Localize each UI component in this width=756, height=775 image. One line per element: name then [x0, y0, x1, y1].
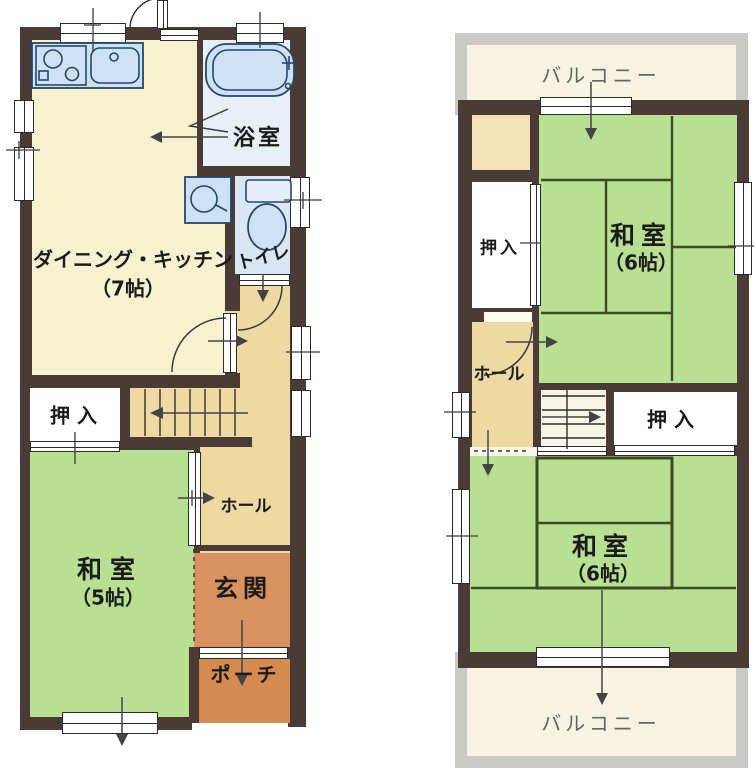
window: [62, 712, 158, 734]
label-hall-2f: ホール: [474, 360, 525, 385]
sliding-door: [188, 452, 201, 546]
label-closet-2f-top: 押入: [480, 234, 520, 259]
label-balcony-bottom: バルコニー: [541, 708, 661, 737]
label-washitsu-1f-size: （5帖）: [71, 582, 145, 611]
label-closet-1f: 押入: [50, 400, 104, 429]
window: [14, 100, 34, 133]
open-door-leaf: [223, 313, 237, 373]
open-door-leaf: [157, 0, 168, 29]
window: [452, 392, 470, 438]
room-hall-2f: [472, 322, 533, 447]
sliding-door: [614, 445, 735, 456]
window: [734, 182, 752, 275]
window: [60, 23, 126, 43]
label-porch: ポーチ: [211, 659, 280, 688]
room-stairs-1f: [130, 388, 250, 437]
label-bathroom: 浴室: [233, 120, 283, 152]
porch-open-edge: [192, 723, 288, 733]
wall-porch-left: [189, 647, 199, 723]
window: [536, 647, 670, 667]
window: [452, 489, 470, 584]
label-dining-kitchen: ダイニング・キッチン: [33, 244, 233, 273]
room-dining-kitchen: [32, 40, 197, 178]
window: [14, 147, 34, 201]
doorway-hall-2f: [484, 312, 532, 322]
floor-plan-canvas: ダイニング・キッチン （7帖） 浴室 トイレ 押入 和室 （5帖） ホール 玄関…: [0, 0, 756, 775]
sliding-door: [239, 274, 290, 286]
hall-2f-dash-strip: [470, 447, 537, 456]
room-hall-2f-nook: [472, 115, 530, 170]
door-threshold: [160, 29, 199, 41]
window: [540, 97, 632, 115]
window: [291, 326, 311, 380]
window: [291, 390, 311, 437]
wall-end-patch: [288, 727, 308, 733]
label-closet-2f-bottom: 押入: [647, 404, 701, 433]
sliding-door: [537, 446, 607, 456]
label-hall-1f: ホール: [221, 492, 272, 517]
label-washitsu-2f-top-size: （6帖）: [604, 247, 678, 276]
label-dining-kitchen-size: （7帖）: [91, 273, 165, 302]
window: [236, 23, 284, 43]
room-stairs-2f: [541, 390, 606, 450]
entrance-step: [199, 647, 288, 659]
sliding-door: [530, 184, 541, 306]
label-entrance: 玄関: [214, 569, 272, 604]
label-washitsu-2f-bottom-size: （6帖）: [566, 558, 640, 587]
sliding-door: [30, 441, 120, 452]
wall-entrance-top: [200, 545, 290, 551]
label-balcony-top: バルコニー: [541, 60, 661, 89]
window: [290, 177, 310, 228]
